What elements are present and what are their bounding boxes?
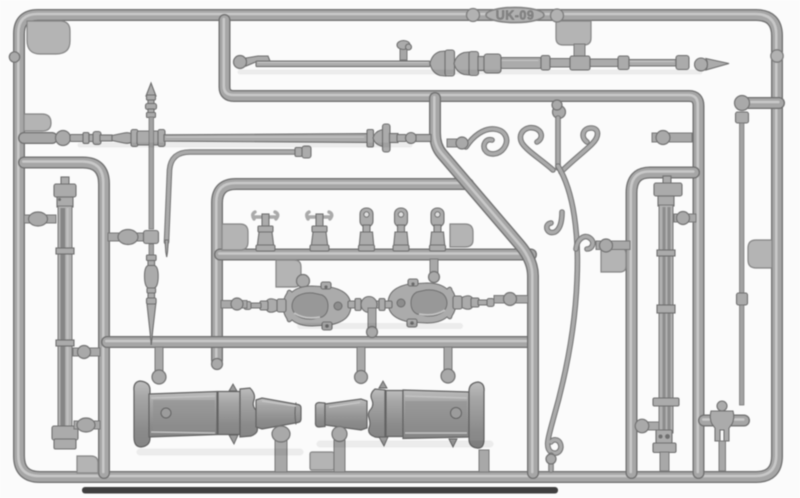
svg-text:UK-09: UK-09 [496, 9, 535, 23]
